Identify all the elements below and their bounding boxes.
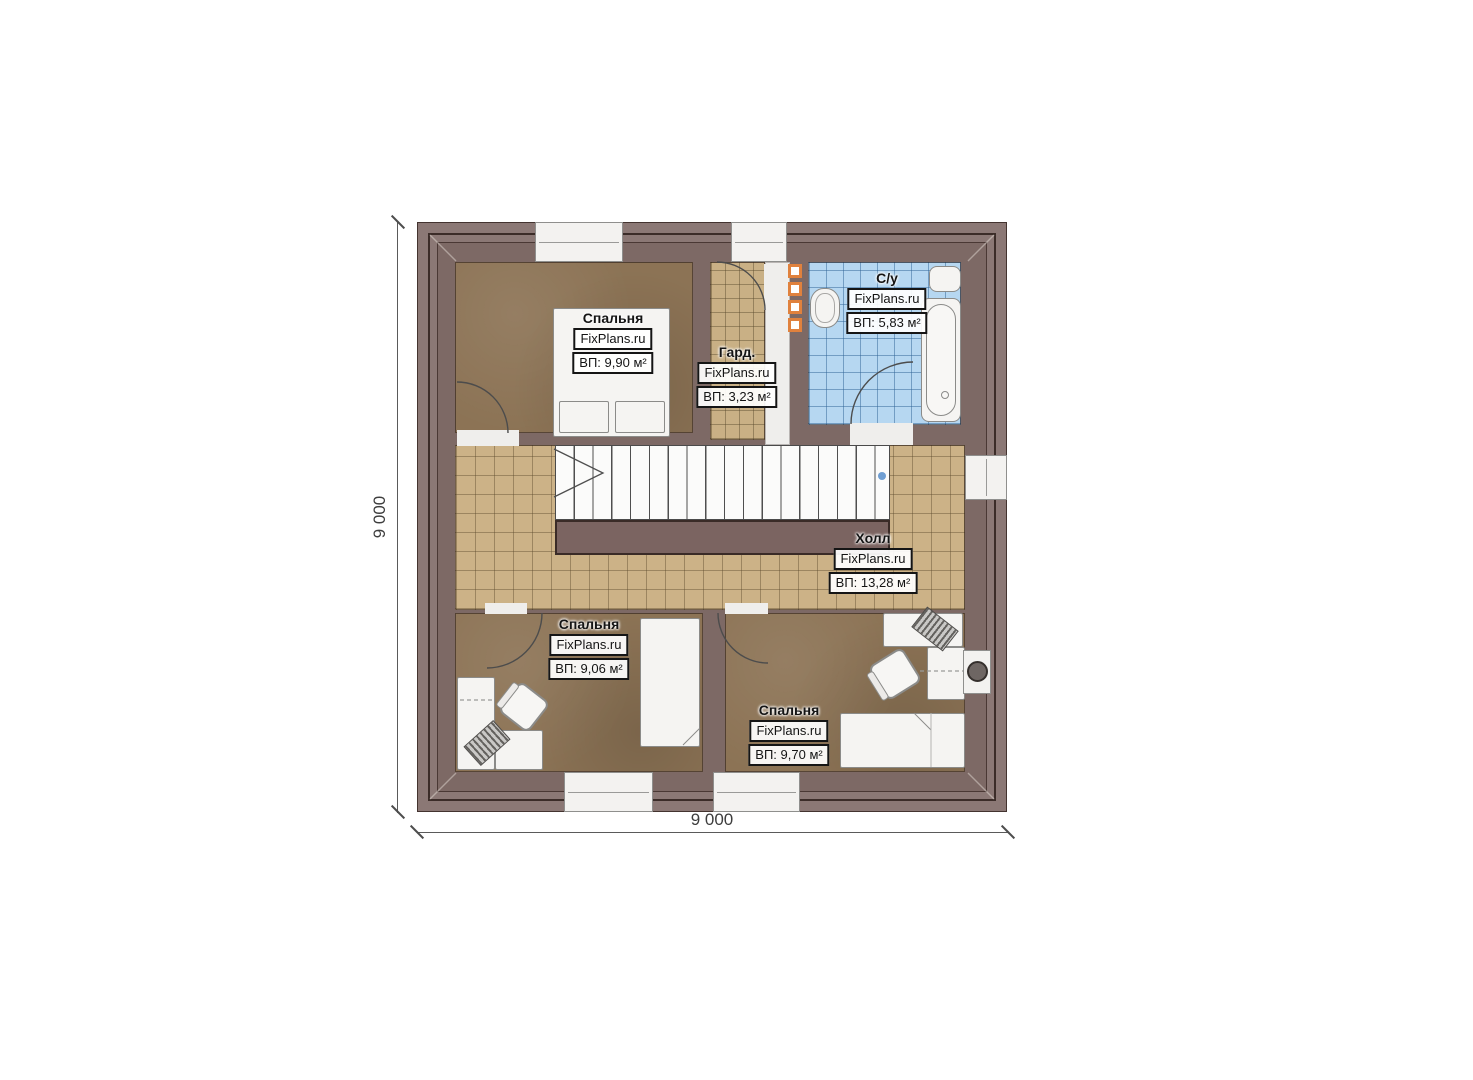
toilet <box>929 266 961 292</box>
watermark-box: FixPlans.ru <box>697 362 776 384</box>
room-name: Спальня <box>559 616 619 632</box>
room-name: Гард. <box>719 344 756 360</box>
room-label-bedroom-top: Спальня FixPlans.ru ВП: 9,90 м² <box>572 310 653 374</box>
watermark-box: FixPlans.ru <box>549 634 628 656</box>
vent-circle <box>967 661 988 682</box>
door-opening-bedroom-left <box>485 603 527 614</box>
door-opening-wardrobe <box>764 264 773 310</box>
pillow <box>615 401 665 433</box>
room-label-bedroom-left: Спальня FixPlans.ru ВП: 9,06 м² <box>548 616 629 680</box>
staircase-treads <box>555 445 890 520</box>
dimension-line-left <box>397 222 398 813</box>
desk <box>927 647 965 700</box>
room-name: Спальня <box>759 702 819 718</box>
room-name: Спальня <box>583 310 643 326</box>
room-name: Холл <box>855 530 890 546</box>
area-box: ВП: 9,90 м² <box>572 352 653 374</box>
window-right-hall <box>965 455 1007 500</box>
window-bottom-1 <box>564 772 653 812</box>
dimension-tick <box>391 805 405 819</box>
floor-plan: Спальня FixPlans.ru ВП: 9,90 м² Гард. Fi… <box>417 222 1007 812</box>
room-name: С/у <box>876 270 898 286</box>
single-bed <box>640 618 700 747</box>
watermark-box: FixPlans.ru <box>847 288 926 310</box>
room-label-wardrobe: Гард. FixPlans.ru ВП: 3,23 м² <box>696 344 777 408</box>
watermark-box: FixPlans.ru <box>573 328 652 350</box>
radiator <box>788 264 802 278</box>
bathtub-basin <box>926 304 956 416</box>
room-label-bedroom-right: Спальня FixPlans.ru ВП: 9,70 м² <box>748 702 829 766</box>
area-box: ВП: 3,23 м² <box>696 386 777 408</box>
door-opening-bedroom-right <box>725 603 768 614</box>
room-label-bathroom: С/у FixPlans.ru ВП: 5,83 м² <box>846 270 927 334</box>
dimension-tick <box>391 215 405 229</box>
area-box: ВП: 13,28 м² <box>829 572 918 594</box>
window-top-2 <box>731 222 787 262</box>
bathtub-drain <box>941 391 949 399</box>
dimension-label-left: 9 000 <box>370 467 390 567</box>
window-bottom-2 <box>713 772 800 812</box>
watermark-box: FixPlans.ru <box>833 548 912 570</box>
window-top-1 <box>535 222 623 262</box>
watermark-box: FixPlans.ru <box>749 720 828 742</box>
single-bed <box>840 713 965 768</box>
radiator <box>788 300 802 314</box>
door-opening-bedroom-top <box>457 430 519 446</box>
floor-plan-page: Спальня FixPlans.ru ВП: 9,90 м² Гард. Fi… <box>0 0 1473 1080</box>
radiator <box>788 318 802 332</box>
area-box: ВП: 9,70 м² <box>748 744 829 766</box>
door-opening-bathroom <box>850 423 913 445</box>
area-box: ВП: 5,83 м² <box>846 312 927 334</box>
dimension-line-bottom <box>417 832 1008 833</box>
dimension-label-bottom: 9 000 <box>642 810 782 830</box>
sink <box>810 288 840 328</box>
pillow <box>559 401 609 433</box>
area-box: ВП: 9,06 м² <box>548 658 629 680</box>
room-label-hall: Холл FixPlans.ru ВП: 13,28 м² <box>829 530 918 594</box>
radiator <box>788 282 802 296</box>
